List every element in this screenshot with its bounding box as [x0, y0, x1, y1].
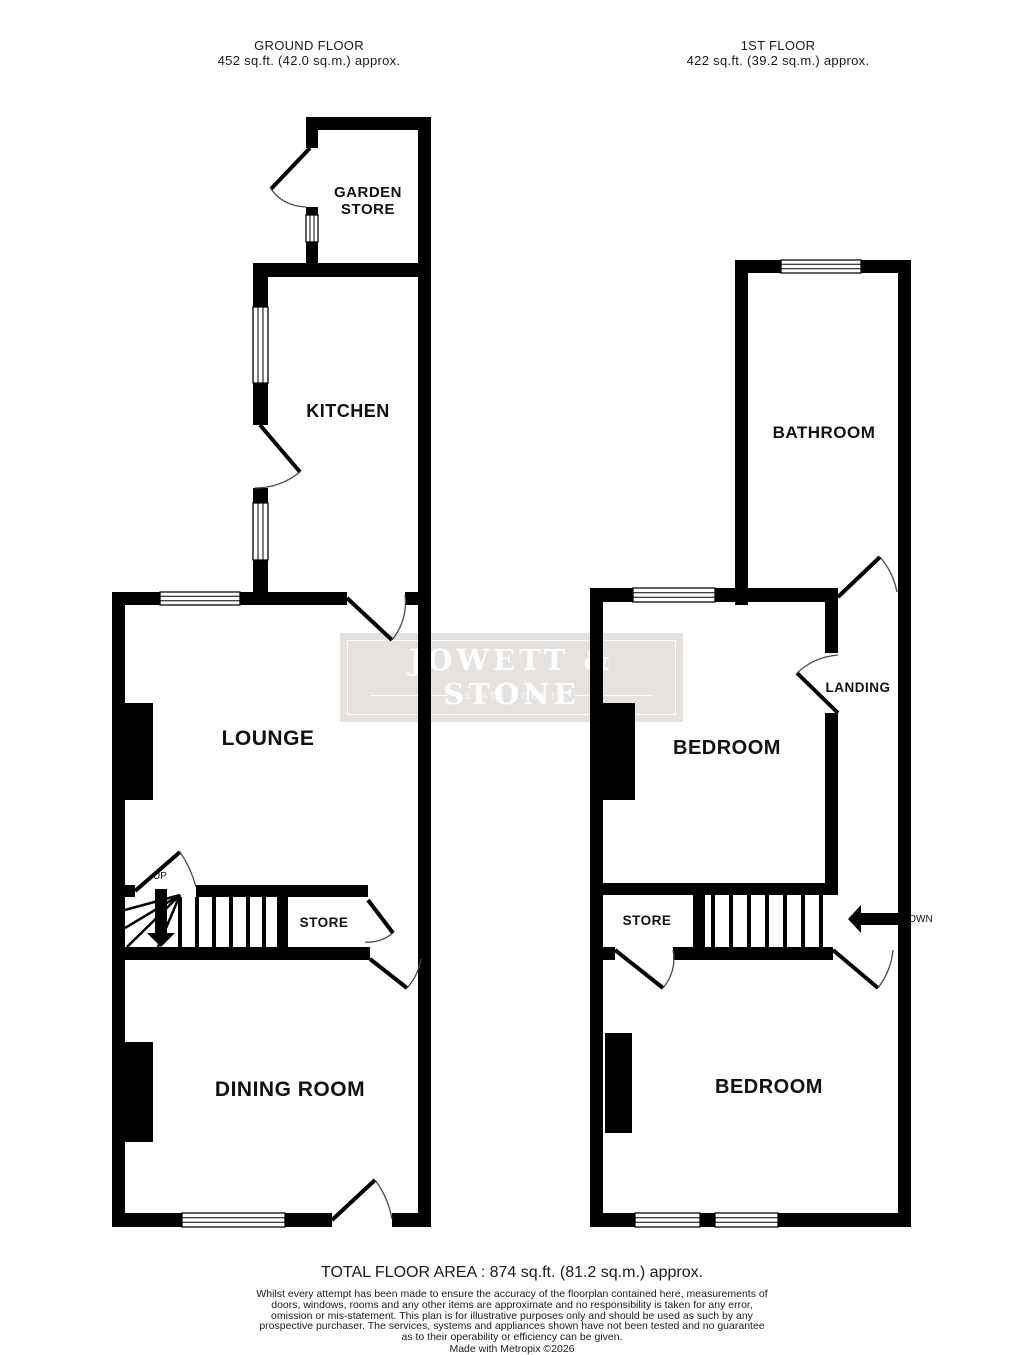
bedroom-front-label: BEDROOM — [673, 737, 781, 759]
ground-floor-plan: UP GARDEN STORE KITCHEN LOUNGE STORE DIN… — [112, 117, 431, 1227]
down-arrow-stem — [861, 913, 898, 925]
ground-floor-window-panes — [161, 216, 315, 1223]
stair-treads-first — [713, 895, 821, 947]
total-floor-area: TOTAL FLOOR AREA : 874 sq.ft. (81.2 sq.m… — [0, 1264, 1024, 1282]
disclaimer-text: Whilst every attempt has been made to en… — [255, 1289, 770, 1343]
lounge-label: LOUNGE — [222, 727, 315, 750]
floorplan-drawing: UP GARDEN STORE KITCHEN LOUNGE STORE DIN… — [0, 0, 1024, 1355]
stair-treads-ground — [180, 897, 264, 947]
bathroom-label: BATHROOM — [773, 423, 876, 442]
footer: TOTAL FLOOR AREA : 874 sq.ft. (81.2 sq.m… — [0, 1264, 1024, 1355]
dining-room-label: DINING ROOM — [215, 1078, 365, 1101]
ground-floor-walls — [112, 117, 431, 1227]
ground-floor-door-leaves — [135, 148, 407, 1220]
first-floor-staircase — [713, 895, 898, 947]
ground-floor-door-swings — [180, 189, 421, 1219]
stair-winders-ground — [125, 895, 180, 947]
up-arrow-head — [147, 933, 175, 947]
garden-store-label-line1: GARDEN — [334, 184, 402, 201]
up-label: UP — [153, 871, 167, 882]
bedroom-back-label: BEDROOM — [715, 1076, 823, 1098]
store-ground-label: STORE — [300, 915, 349, 930]
kitchen-label: KITCHEN — [306, 401, 390, 421]
landing-label: LANDING — [826, 680, 891, 695]
down-arrow-head — [848, 905, 861, 933]
garden-store-label-line2: STORE — [341, 201, 395, 218]
first-floor-plan: DOWN BATHROOM LANDING BEDROOM STORE BEDR… — [590, 260, 933, 1227]
metropix-credit: Made with Metropix ©2026 — [0, 1344, 1024, 1355]
floorplan-page: GROUND FLOOR 452 sq.ft. (42.0 sq.m.) app… — [0, 0, 1024, 1355]
ground-floor-windows — [160, 215, 318, 1227]
store-first-label: STORE — [623, 913, 672, 928]
up-arrow-stem — [155, 889, 167, 933]
